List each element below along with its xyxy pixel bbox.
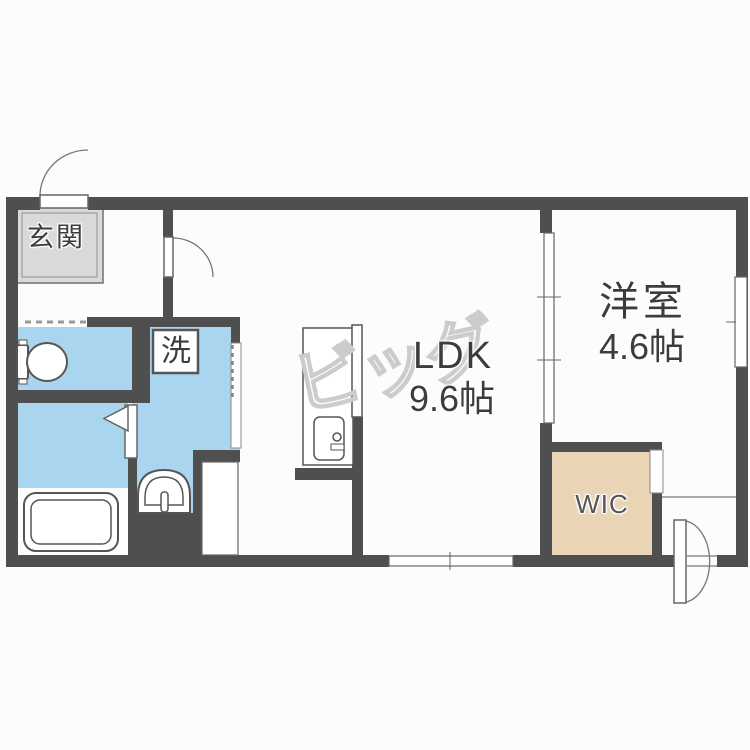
- washbasin-faucet: [161, 492, 168, 512]
- wall-washroom-east-top: [231, 327, 240, 344]
- wall-wic-right: [652, 493, 662, 557]
- wall-top: [88, 197, 748, 210]
- wall-hall-south: [87, 317, 240, 327]
- wall-backdoor-gap: [687, 556, 717, 566]
- wall-below-washbasin: [137, 513, 193, 557]
- toilet-tank-tab: [19, 379, 27, 384]
- window-south: [389, 556, 513, 566]
- wic-opening: [650, 450, 663, 493]
- wall-bath-washroom-lower: [128, 458, 137, 557]
- wall-hall-ldk-upper: [163, 210, 173, 237]
- label-ldk-size: 9.6帖: [409, 381, 495, 417]
- wall-right: [736, 197, 748, 567]
- bathtub: [24, 493, 118, 551]
- wall-bottom-mid: [513, 555, 675, 567]
- kitchen-counter: [303, 325, 362, 465]
- wall-toilet-washroom: [132, 318, 150, 402]
- label-wic: WIC: [575, 491, 629, 517]
- bathtub-outer: [24, 493, 118, 551]
- floor-plan: ビッグ 玄関 洗 LDK 9.6帖 洋室 4.6帖 WIC: [0, 0, 750, 750]
- wall-wic-left: [540, 452, 552, 557]
- label-entrance: 玄関: [27, 225, 85, 252]
- toilet-tank-tab: [19, 340, 27, 345]
- wall-wic-top: [540, 442, 662, 452]
- ldk-door-leaf: [164, 237, 173, 277]
- kitchen-faucet-base: [331, 444, 344, 450]
- wall-left: [6, 197, 18, 567]
- entrance-door-arc: [40, 150, 88, 196]
- wall-hall-ldk-lower: [163, 277, 173, 318]
- window-east: [735, 277, 747, 367]
- label-bedroom-name: 洋室: [599, 282, 687, 322]
- kitchen-faucet: [333, 433, 341, 441]
- wall-kitchen-south: [295, 468, 352, 480]
- ldk-door-arc: [173, 238, 213, 277]
- wall-ldk-bedroom-upper: [540, 210, 552, 233]
- washing-machine-space: [202, 462, 238, 555]
- wall-laundry-space-west: [193, 462, 202, 557]
- toilet-bowl: [27, 343, 67, 381]
- floor-plan-drawing: [0, 0, 750, 750]
- label-laundry: 洗: [161, 337, 191, 367]
- washbasin: [138, 470, 190, 513]
- wall-bottom-east: [717, 555, 748, 567]
- label-ldk-name: LDK: [413, 337, 493, 375]
- bedroom-sliding-partition: [544, 233, 554, 423]
- wall-toilet-bottom: [6, 390, 150, 403]
- entrance-door-leaf: [40, 195, 88, 208]
- label-bedroom-size: 4.6帖: [599, 329, 685, 365]
- toilet-fixture: [17, 340, 67, 384]
- kitchen-partition-counter: [352, 325, 362, 417]
- wall-backdoor-zone: [687, 556, 717, 566]
- wall-washroom-southeast: [193, 450, 240, 462]
- back-door-leaf: [674, 520, 686, 603]
